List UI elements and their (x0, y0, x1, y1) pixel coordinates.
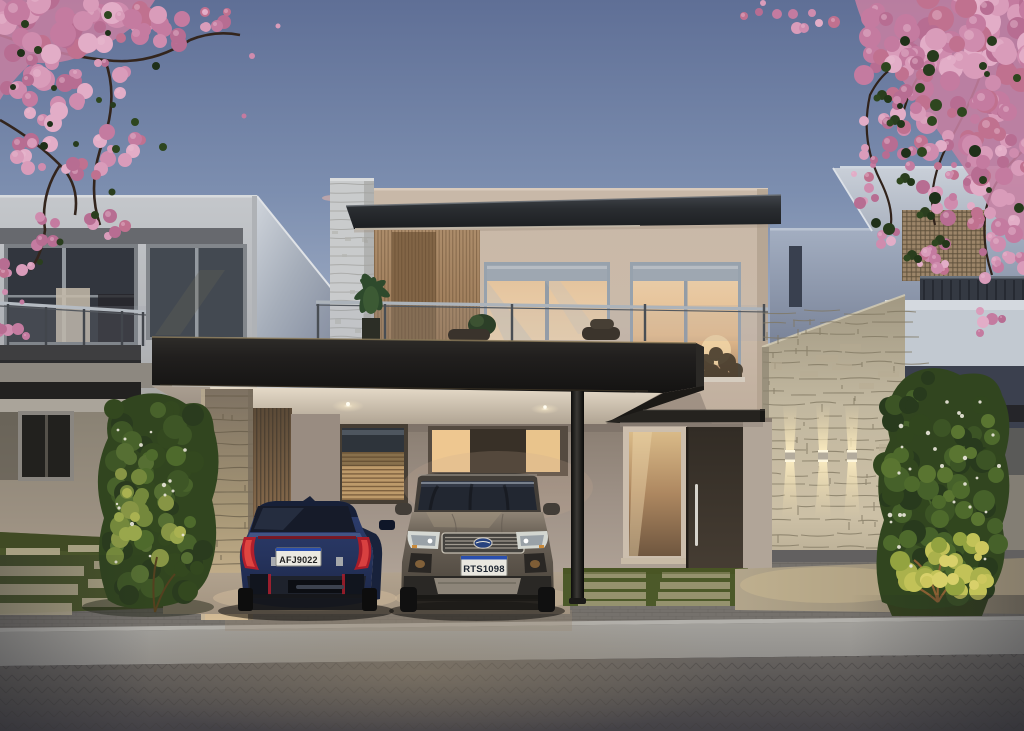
svg-text:RTS1098: RTS1098 (463, 564, 505, 575)
svg-text:AFJ9022: AFJ9022 (279, 555, 317, 565)
